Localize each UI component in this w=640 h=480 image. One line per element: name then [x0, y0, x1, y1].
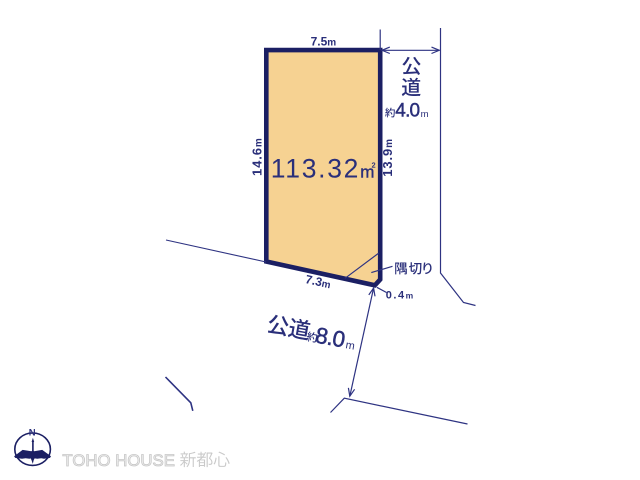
- svg-text:2: 2: [372, 162, 376, 169]
- svg-text:7.5m: 7.5m: [311, 35, 337, 49]
- svg-text:m: m: [345, 339, 356, 352]
- svg-text:m: m: [421, 109, 429, 120]
- svg-text:TOHO HOUSE: TOHO HOUSE: [62, 451, 175, 470]
- svg-text:113.32: 113.32: [271, 154, 360, 184]
- svg-text:0.4m: 0.4m: [386, 289, 415, 301]
- svg-text:14.6m: 14.6m: [249, 137, 264, 176]
- svg-text:N: N: [29, 427, 36, 438]
- svg-text:4.0: 4.0: [395, 101, 419, 122]
- svg-text:8.0: 8.0: [313, 323, 346, 353]
